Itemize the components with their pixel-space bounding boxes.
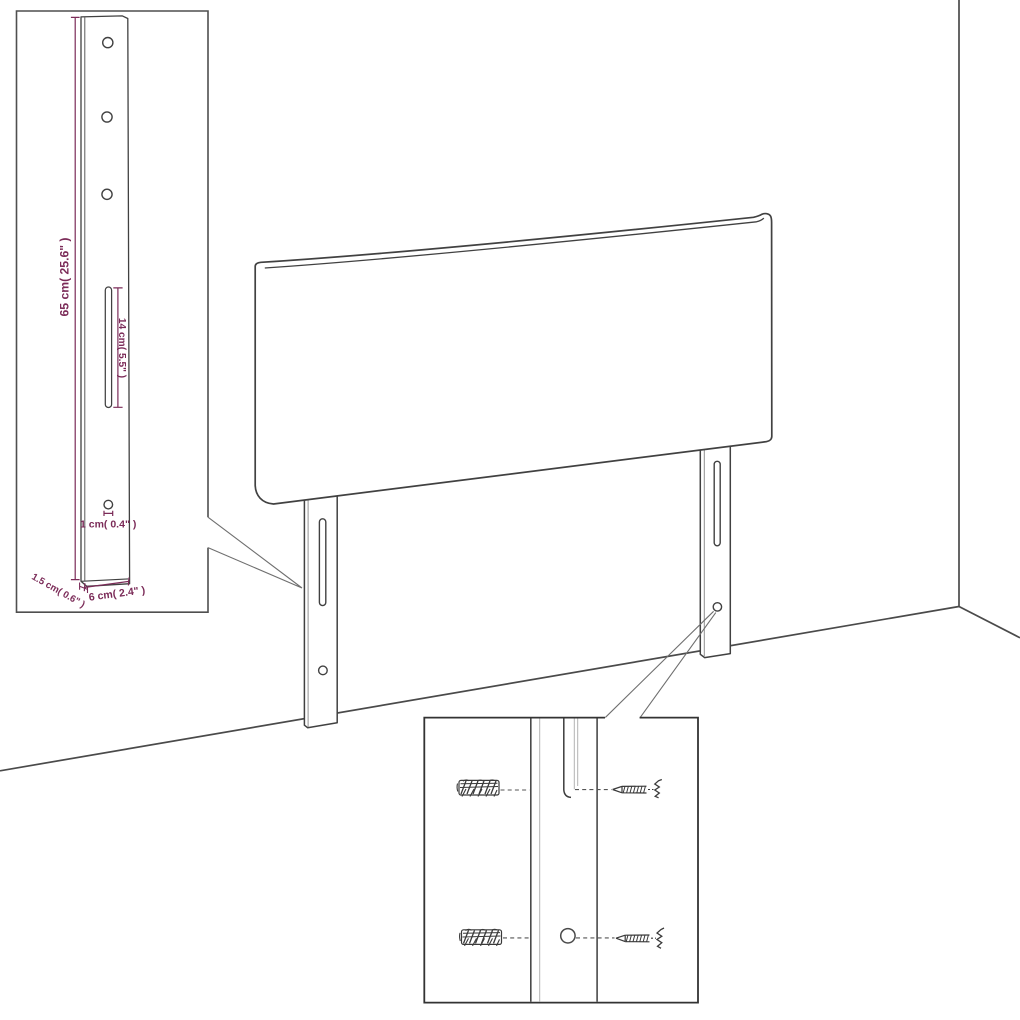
svg-text:1 cm( 0.4" ): 1 cm( 0.4" ) <box>80 519 136 531</box>
svg-text:14 cm( 5.5" ): 14 cm( 5.5" ) <box>116 318 127 378</box>
svg-text:65 cm( 25.6" ): 65 cm( 25.6" ) <box>58 238 72 317</box>
